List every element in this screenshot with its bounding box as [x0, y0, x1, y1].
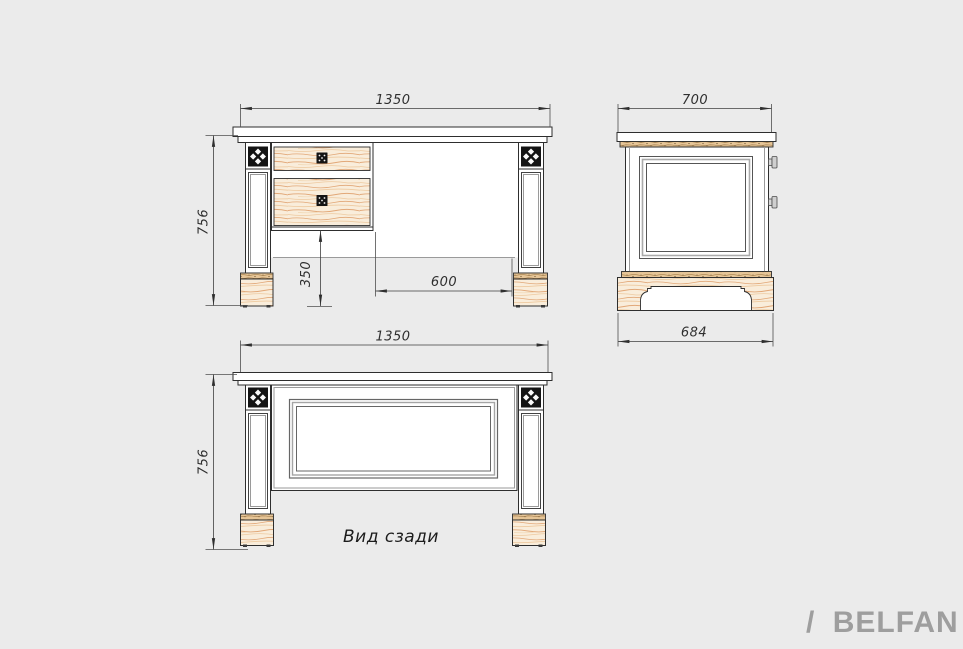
front-width-label: 1350 — [375, 93, 410, 108]
technical-drawing: 1350 756 350 600 — [0, 0, 963, 649]
front-left-foot — [241, 273, 274, 308]
drawer-knob-icon — [317, 153, 328, 164]
front-leg-height-label: 350 — [299, 261, 314, 287]
back-right-leg — [519, 385, 544, 514]
front-view: 1350 756 350 600 — [197, 93, 553, 308]
back-panel — [272, 385, 518, 491]
back-right-foot — [513, 514, 546, 547]
back-view: 1350 756 Вид сзади — [197, 330, 553, 550]
logo-text: BELFAN — [833, 606, 959, 639]
drawer-knob-icon — [317, 195, 328, 206]
rosette-icon — [521, 388, 541, 408]
side-desktop — [617, 133, 776, 148]
front-left-leg — [246, 143, 271, 274]
side-width-label: 700 — [682, 93, 708, 108]
front-desktop — [233, 127, 552, 143]
back-view-caption: Вид сзади — [343, 527, 439, 547]
front-kneehole-label: 600 — [431, 275, 457, 290]
blueprint-canvas: 1350 756 350 600 — [0, 0, 963, 649]
side-plinth — [618, 272, 774, 311]
side-carcass — [626, 147, 769, 272]
logo-slash-icon: / — [806, 606, 815, 639]
back-height-label: 756 — [197, 449, 212, 475]
back-left-leg — [246, 385, 271, 514]
side-base-dimension: 684 — [618, 313, 773, 347]
front-right-foot — [514, 273, 548, 308]
front-width-dimension: 1350 — [241, 93, 551, 127]
back-desktop — [233, 373, 552, 386]
rosette-icon — [248, 147, 268, 167]
side-knob-icon — [769, 157, 778, 169]
front-right-leg — [519, 143, 544, 274]
svg-text:/ BELFAN: / BELFAN — [806, 606, 959, 639]
brand-logo: / BELFAN — [806, 606, 959, 639]
back-width-label: 1350 — [375, 330, 410, 345]
side-view: 700 684 — [617, 93, 777, 347]
back-left-foot — [241, 514, 274, 547]
side-knob-icon — [769, 197, 778, 209]
rosette-icon — [248, 388, 268, 408]
side-base-label: 684 — [681, 326, 707, 341]
rosette-icon — [521, 147, 541, 167]
front-height-label: 756 — [197, 209, 212, 235]
side-width-dimension: 700 — [618, 93, 772, 132]
front-drawer-unit — [272, 143, 374, 231]
back-width-dimension: 1350 — [241, 330, 549, 373]
